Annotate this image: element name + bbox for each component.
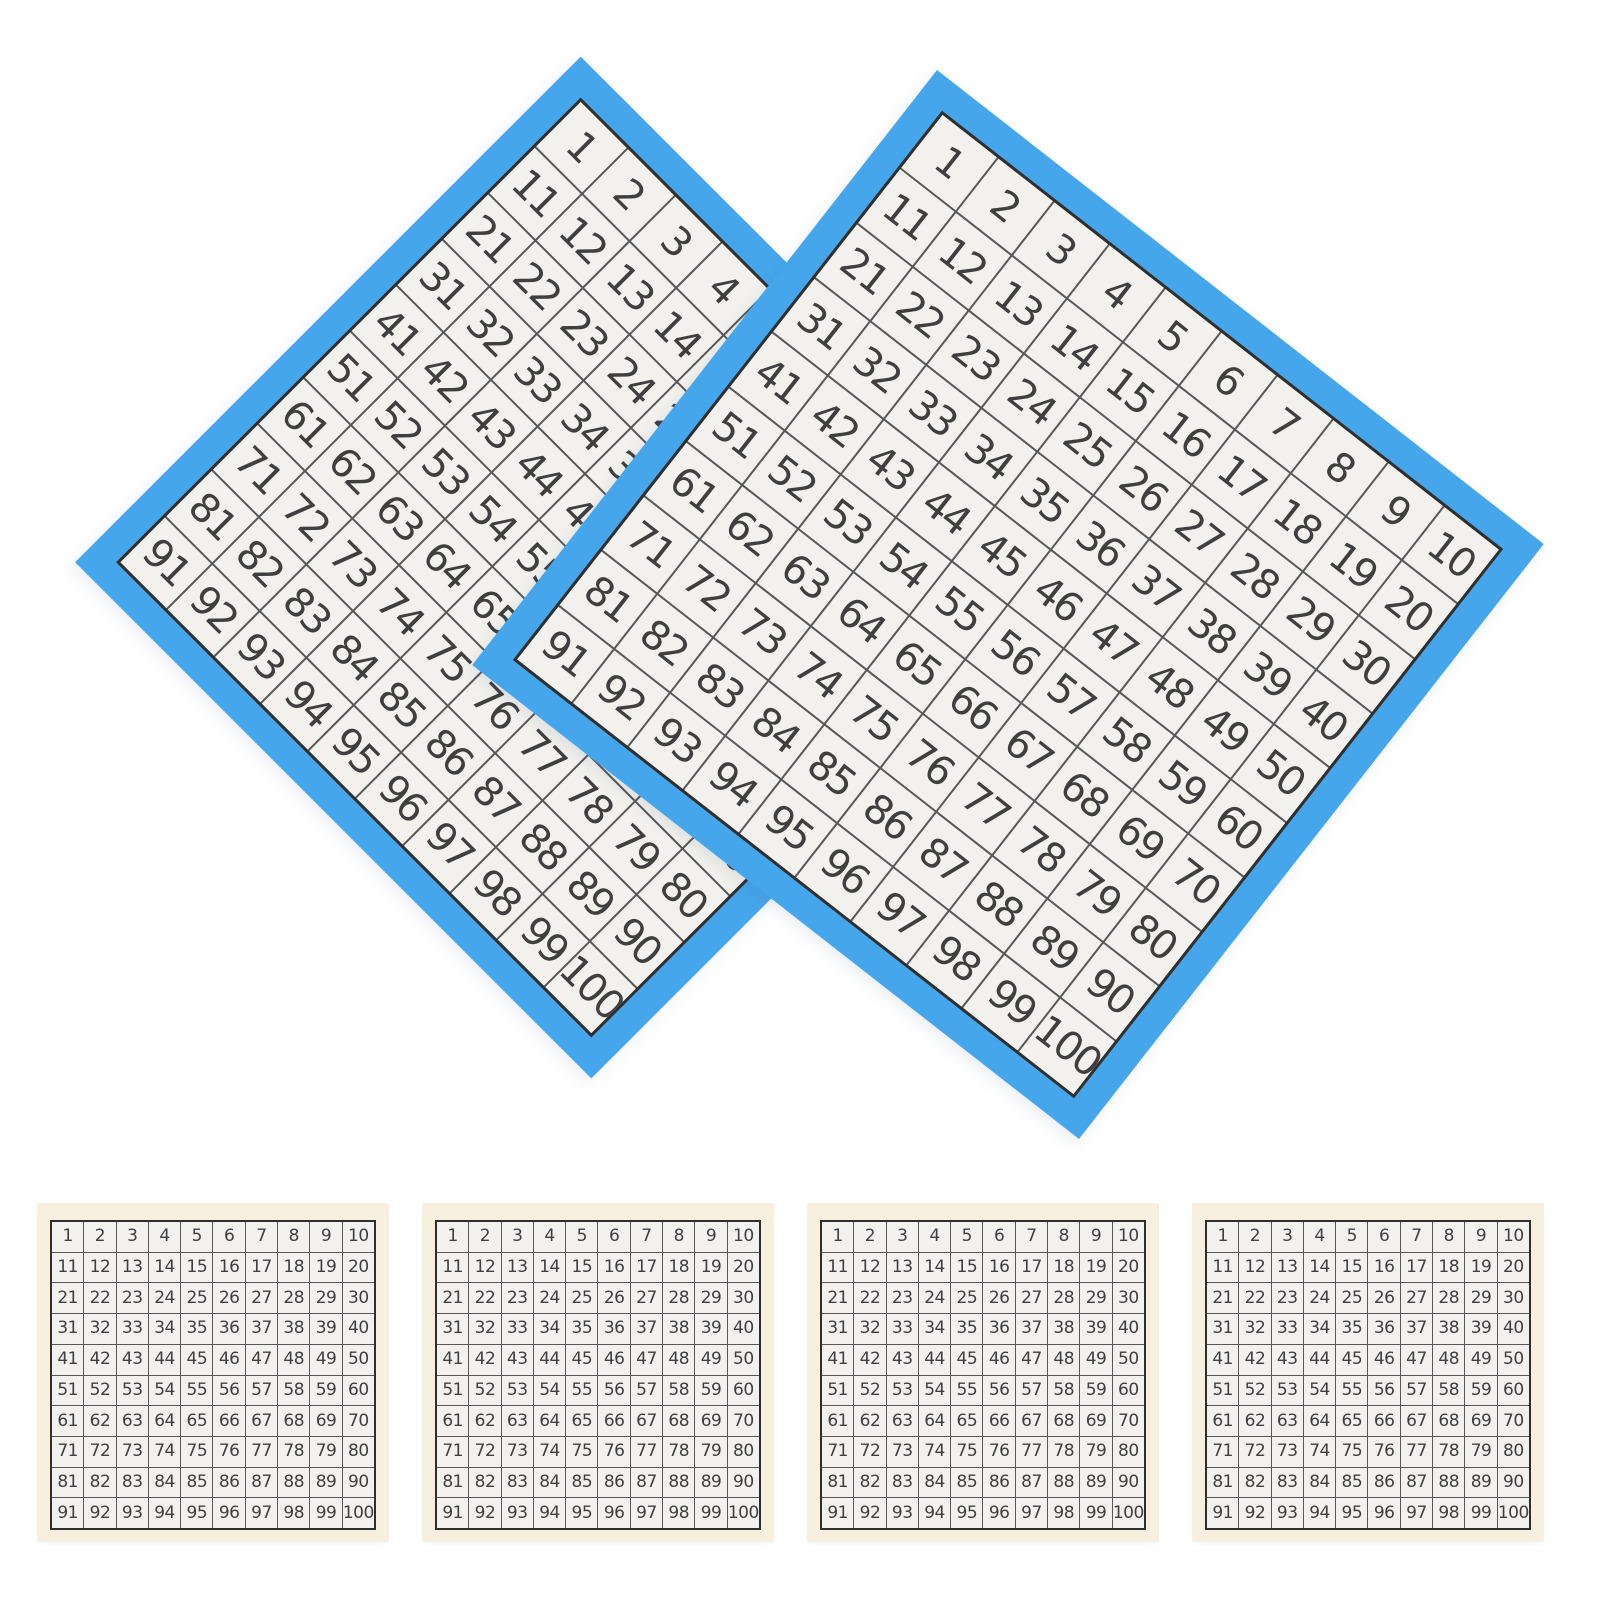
number-cell-69: 69 bbox=[1465, 1406, 1496, 1436]
number-cell-87: 87 bbox=[631, 1468, 662, 1498]
number-cell-70: 70 bbox=[728, 1406, 759, 1436]
number-cell-87: 87 bbox=[1016, 1468, 1047, 1498]
number-cell-4: 4 bbox=[534, 1222, 565, 1252]
number-cell-1: 1 bbox=[437, 1222, 468, 1252]
number-cell-93: 93 bbox=[1272, 1498, 1303, 1528]
number-cell-95: 95 bbox=[566, 1498, 597, 1528]
number-cell-31: 31 bbox=[52, 1314, 83, 1344]
number-cell-15: 15 bbox=[566, 1253, 597, 1283]
number-cell-27: 27 bbox=[631, 1283, 662, 1313]
number-cell-31: 31 bbox=[822, 1314, 853, 1344]
number-cell-65: 65 bbox=[566, 1406, 597, 1436]
number-cell-94: 94 bbox=[1304, 1498, 1335, 1528]
number-cell-41: 41 bbox=[437, 1345, 468, 1375]
number-cell-14: 14 bbox=[919, 1253, 950, 1283]
number-cell-87: 87 bbox=[246, 1468, 277, 1498]
number-cell-33: 33 bbox=[502, 1314, 533, 1344]
number-cell-89: 89 bbox=[1080, 1468, 1111, 1498]
hundred-chart-card-small-2: 1234567891011121314151617181920212223242… bbox=[425, 1210, 771, 1540]
number-cell-18: 18 bbox=[278, 1253, 309, 1283]
number-cell-94: 94 bbox=[149, 1498, 180, 1528]
number-cell-44: 44 bbox=[149, 1345, 180, 1375]
number-cell-33: 33 bbox=[1272, 1314, 1303, 1344]
number-cell-88: 88 bbox=[278, 1468, 309, 1498]
number-cell-91: 91 bbox=[822, 1498, 853, 1528]
number-cell-77: 77 bbox=[246, 1437, 277, 1467]
number-cell-73: 73 bbox=[502, 1437, 533, 1467]
number-cell-35: 35 bbox=[1336, 1314, 1367, 1344]
number-cell-9: 9 bbox=[1465, 1222, 1496, 1252]
number-cell-85: 85 bbox=[1336, 1468, 1367, 1498]
number-cell-38: 38 bbox=[1433, 1314, 1464, 1344]
number-cell-9: 9 bbox=[695, 1222, 726, 1252]
number-cell-93: 93 bbox=[502, 1498, 533, 1528]
number-cell-6: 6 bbox=[598, 1222, 629, 1252]
number-cell-71: 71 bbox=[52, 1437, 83, 1467]
number-cell-25: 25 bbox=[566, 1283, 597, 1313]
number-cell-28: 28 bbox=[1433, 1283, 1464, 1313]
number-cell-66: 66 bbox=[213, 1406, 244, 1436]
number-cell-73: 73 bbox=[117, 1437, 148, 1467]
number-cell-43: 43 bbox=[887, 1345, 918, 1375]
number-cell-56: 56 bbox=[983, 1376, 1014, 1406]
number-cell-13: 13 bbox=[117, 1253, 148, 1283]
number-cell-26: 26 bbox=[983, 1283, 1014, 1313]
number-cell-76: 76 bbox=[598, 1437, 629, 1467]
number-cell-60: 60 bbox=[728, 1376, 759, 1406]
number-cell-84: 84 bbox=[534, 1468, 565, 1498]
number-cell-20: 20 bbox=[728, 1253, 759, 1283]
number-cell-48: 48 bbox=[278, 1345, 309, 1375]
number-cell-75: 75 bbox=[1336, 1437, 1367, 1467]
number-cell-65: 65 bbox=[1336, 1406, 1367, 1436]
number-cell-40: 40 bbox=[343, 1314, 374, 1344]
number-cell-2: 2 bbox=[854, 1222, 885, 1252]
number-cell-6: 6 bbox=[213, 1222, 244, 1252]
number-cell-81: 81 bbox=[822, 1468, 853, 1498]
number-cell-91: 91 bbox=[52, 1498, 83, 1528]
number-cell-13: 13 bbox=[1272, 1253, 1303, 1283]
number-cell-59: 59 bbox=[695, 1376, 726, 1406]
number-cell-68: 68 bbox=[278, 1406, 309, 1436]
number-cell-85: 85 bbox=[951, 1468, 982, 1498]
number-cell-58: 58 bbox=[278, 1376, 309, 1406]
number-cell-3: 3 bbox=[887, 1222, 918, 1252]
number-cell-9: 9 bbox=[310, 1222, 341, 1252]
number-cell-11: 11 bbox=[1207, 1253, 1238, 1283]
number-cell-100: 100 bbox=[1498, 1498, 1529, 1528]
number-cell-91: 91 bbox=[1207, 1498, 1238, 1528]
number-cell-37: 37 bbox=[246, 1314, 277, 1344]
number-cell-90: 90 bbox=[1113, 1468, 1144, 1498]
number-cell-43: 43 bbox=[1272, 1345, 1303, 1375]
number-cell-68: 68 bbox=[1433, 1406, 1464, 1436]
number-cell-79: 79 bbox=[1080, 1437, 1111, 1467]
number-cell-43: 43 bbox=[502, 1345, 533, 1375]
number-cell-53: 53 bbox=[502, 1376, 533, 1406]
number-cell-42: 42 bbox=[854, 1345, 885, 1375]
number-cell-89: 89 bbox=[1465, 1468, 1496, 1498]
number-cell-34: 34 bbox=[1304, 1314, 1335, 1344]
number-cell-7: 7 bbox=[1016, 1222, 1047, 1252]
number-cell-89: 89 bbox=[310, 1468, 341, 1498]
number-cell-66: 66 bbox=[983, 1406, 1014, 1436]
number-cell-11: 11 bbox=[822, 1253, 853, 1283]
number-cell-88: 88 bbox=[1433, 1468, 1464, 1498]
number-cell-98: 98 bbox=[1433, 1498, 1464, 1528]
hundred-chart-card-small-3: 1234567891011121314151617181920212223242… bbox=[810, 1210, 1156, 1540]
number-cell-83: 83 bbox=[1272, 1468, 1303, 1498]
number-cell-95: 95 bbox=[181, 1498, 212, 1528]
number-cell-62: 62 bbox=[84, 1406, 115, 1436]
number-cell-55: 55 bbox=[951, 1376, 982, 1406]
number-cell-40: 40 bbox=[728, 1314, 759, 1344]
number-cell-78: 78 bbox=[663, 1437, 694, 1467]
number-cell-19: 19 bbox=[695, 1253, 726, 1283]
number-cell-27: 27 bbox=[1401, 1283, 1432, 1313]
number-cell-39: 39 bbox=[1080, 1314, 1111, 1344]
number-cell-16: 16 bbox=[983, 1253, 1014, 1283]
number-cell-61: 61 bbox=[437, 1406, 468, 1436]
number-cell-96: 96 bbox=[598, 1498, 629, 1528]
number-cell-46: 46 bbox=[213, 1345, 244, 1375]
number-cell-89: 89 bbox=[695, 1468, 726, 1498]
number-cell-53: 53 bbox=[1272, 1376, 1303, 1406]
number-cell-77: 77 bbox=[1016, 1437, 1047, 1467]
number-cell-24: 24 bbox=[149, 1283, 180, 1313]
number-cell-99: 99 bbox=[695, 1498, 726, 1528]
number-cell-26: 26 bbox=[1368, 1283, 1399, 1313]
number-cell-86: 86 bbox=[1368, 1468, 1399, 1498]
number-cell-29: 29 bbox=[695, 1283, 726, 1313]
number-cell-94: 94 bbox=[534, 1498, 565, 1528]
number-cell-76: 76 bbox=[1368, 1437, 1399, 1467]
number-cell-36: 36 bbox=[598, 1314, 629, 1344]
number-cell-13: 13 bbox=[502, 1253, 533, 1283]
number-cell-55: 55 bbox=[181, 1376, 212, 1406]
number-cell-32: 32 bbox=[854, 1314, 885, 1344]
number-cell-97: 97 bbox=[246, 1498, 277, 1528]
number-cell-56: 56 bbox=[1368, 1376, 1399, 1406]
number-cell-9: 9 bbox=[1080, 1222, 1111, 1252]
number-cell-61: 61 bbox=[52, 1406, 83, 1436]
number-cell-39: 39 bbox=[695, 1314, 726, 1344]
hundred-chart-grid-small-1: 1234567891011121314151617181920212223242… bbox=[50, 1220, 376, 1530]
number-cell-60: 60 bbox=[343, 1376, 374, 1406]
hundred-chart-grid-small-3: 1234567891011121314151617181920212223242… bbox=[820, 1220, 1146, 1530]
number-cell-33: 33 bbox=[117, 1314, 148, 1344]
number-cell-51: 51 bbox=[822, 1376, 853, 1406]
number-cell-35: 35 bbox=[181, 1314, 212, 1344]
number-cell-35: 35 bbox=[951, 1314, 982, 1344]
number-cell-92: 92 bbox=[1239, 1498, 1270, 1528]
number-cell-24: 24 bbox=[1304, 1283, 1335, 1313]
number-cell-57: 57 bbox=[631, 1376, 662, 1406]
number-cell-41: 41 bbox=[822, 1345, 853, 1375]
number-cell-33: 33 bbox=[887, 1314, 918, 1344]
number-cell-40: 40 bbox=[1113, 1314, 1144, 1344]
number-cell-10: 10 bbox=[1113, 1222, 1144, 1252]
number-cell-99: 99 bbox=[310, 1498, 341, 1528]
number-cell-95: 95 bbox=[951, 1498, 982, 1528]
number-cell-34: 34 bbox=[149, 1314, 180, 1344]
number-cell-97: 97 bbox=[1401, 1498, 1432, 1528]
number-cell-64: 64 bbox=[919, 1406, 950, 1436]
number-cell-21: 21 bbox=[52, 1283, 83, 1313]
number-cell-59: 59 bbox=[1080, 1376, 1111, 1406]
number-cell-78: 78 bbox=[1048, 1437, 1079, 1467]
number-cell-25: 25 bbox=[951, 1283, 982, 1313]
number-cell-27: 27 bbox=[1016, 1283, 1047, 1313]
number-cell-24: 24 bbox=[919, 1283, 950, 1313]
number-cell-97: 97 bbox=[631, 1498, 662, 1528]
number-cell-87: 87 bbox=[1401, 1468, 1432, 1498]
number-cell-36: 36 bbox=[1368, 1314, 1399, 1344]
hundred-chart-grid-small-2: 1234567891011121314151617181920212223242… bbox=[435, 1220, 761, 1530]
number-cell-54: 54 bbox=[149, 1376, 180, 1406]
number-cell-60: 60 bbox=[1113, 1376, 1144, 1406]
number-cell-70: 70 bbox=[1498, 1406, 1529, 1436]
number-cell-97: 97 bbox=[1016, 1498, 1047, 1528]
number-cell-53: 53 bbox=[117, 1376, 148, 1406]
number-cell-63: 63 bbox=[887, 1406, 918, 1436]
number-cell-93: 93 bbox=[887, 1498, 918, 1528]
number-cell-14: 14 bbox=[1304, 1253, 1335, 1283]
number-cell-32: 32 bbox=[1239, 1314, 1270, 1344]
number-cell-7: 7 bbox=[1401, 1222, 1432, 1252]
number-cell-69: 69 bbox=[695, 1406, 726, 1436]
number-cell-35: 35 bbox=[566, 1314, 597, 1344]
number-cell-49: 49 bbox=[1465, 1345, 1496, 1375]
number-cell-2: 2 bbox=[84, 1222, 115, 1252]
number-cell-75: 75 bbox=[566, 1437, 597, 1467]
number-cell-37: 37 bbox=[1401, 1314, 1432, 1344]
number-cell-86: 86 bbox=[983, 1468, 1014, 1498]
number-cell-68: 68 bbox=[1048, 1406, 1079, 1436]
number-cell-74: 74 bbox=[1304, 1437, 1335, 1467]
number-cell-56: 56 bbox=[213, 1376, 244, 1406]
number-cell-27: 27 bbox=[246, 1283, 277, 1313]
number-cell-3: 3 bbox=[1272, 1222, 1303, 1252]
number-cell-21: 21 bbox=[437, 1283, 468, 1313]
number-cell-88: 88 bbox=[1048, 1468, 1079, 1498]
number-cell-51: 51 bbox=[1207, 1376, 1238, 1406]
number-cell-73: 73 bbox=[887, 1437, 918, 1467]
number-cell-31: 31 bbox=[437, 1314, 468, 1344]
number-cell-7: 7 bbox=[631, 1222, 662, 1252]
number-cell-65: 65 bbox=[951, 1406, 982, 1436]
number-cell-58: 58 bbox=[663, 1376, 694, 1406]
number-cell-13: 13 bbox=[887, 1253, 918, 1283]
number-cell-77: 77 bbox=[631, 1437, 662, 1467]
number-cell-37: 37 bbox=[1016, 1314, 1047, 1344]
number-cell-51: 51 bbox=[437, 1376, 468, 1406]
number-cell-55: 55 bbox=[566, 1376, 597, 1406]
number-cell-90: 90 bbox=[343, 1468, 374, 1498]
number-cell-30: 30 bbox=[343, 1283, 374, 1313]
number-cell-46: 46 bbox=[983, 1345, 1014, 1375]
number-cell-19: 19 bbox=[1080, 1253, 1111, 1283]
number-cell-45: 45 bbox=[1336, 1345, 1367, 1375]
number-cell-63: 63 bbox=[1272, 1406, 1303, 1436]
number-cell-78: 78 bbox=[278, 1437, 309, 1467]
number-cell-61: 61 bbox=[822, 1406, 853, 1436]
number-cell-30: 30 bbox=[1498, 1283, 1529, 1313]
number-cell-79: 79 bbox=[1465, 1437, 1496, 1467]
number-cell-26: 26 bbox=[598, 1283, 629, 1313]
number-cell-21: 21 bbox=[1207, 1283, 1238, 1313]
number-cell-46: 46 bbox=[598, 1345, 629, 1375]
number-cell-98: 98 bbox=[278, 1498, 309, 1528]
number-cell-84: 84 bbox=[149, 1468, 180, 1498]
number-cell-25: 25 bbox=[181, 1283, 212, 1313]
number-cell-41: 41 bbox=[52, 1345, 83, 1375]
number-cell-83: 83 bbox=[117, 1468, 148, 1498]
number-cell-71: 71 bbox=[437, 1437, 468, 1467]
number-cell-8: 8 bbox=[278, 1222, 309, 1252]
number-cell-91: 91 bbox=[437, 1498, 468, 1528]
number-cell-20: 20 bbox=[343, 1253, 374, 1283]
number-cell-61: 61 bbox=[1207, 1406, 1238, 1436]
number-cell-34: 34 bbox=[534, 1314, 565, 1344]
number-cell-10: 10 bbox=[343, 1222, 374, 1252]
number-cell-99: 99 bbox=[1465, 1498, 1496, 1528]
number-cell-67: 67 bbox=[246, 1406, 277, 1436]
number-cell-45: 45 bbox=[951, 1345, 982, 1375]
number-cell-14: 14 bbox=[149, 1253, 180, 1283]
number-cell-21: 21 bbox=[822, 1283, 853, 1313]
number-cell-59: 59 bbox=[1465, 1376, 1496, 1406]
number-cell-36: 36 bbox=[213, 1314, 244, 1344]
number-cell-82: 82 bbox=[469, 1468, 500, 1498]
number-cell-23: 23 bbox=[1272, 1283, 1303, 1313]
number-cell-84: 84 bbox=[1304, 1468, 1335, 1498]
number-cell-1: 1 bbox=[822, 1222, 853, 1252]
number-cell-28: 28 bbox=[278, 1283, 309, 1313]
number-cell-12: 12 bbox=[1239, 1253, 1270, 1283]
number-cell-11: 11 bbox=[437, 1253, 468, 1283]
number-cell-32: 32 bbox=[469, 1314, 500, 1344]
number-cell-85: 85 bbox=[566, 1468, 597, 1498]
number-cell-18: 18 bbox=[663, 1253, 694, 1283]
number-cell-4: 4 bbox=[1304, 1222, 1335, 1252]
number-cell-50: 50 bbox=[728, 1345, 759, 1375]
number-cell-16: 16 bbox=[213, 1253, 244, 1283]
number-cell-8: 8 bbox=[1433, 1222, 1464, 1252]
number-cell-67: 67 bbox=[631, 1406, 662, 1436]
number-cell-72: 72 bbox=[469, 1437, 500, 1467]
number-cell-18: 18 bbox=[1048, 1253, 1079, 1283]
number-cell-49: 49 bbox=[1080, 1345, 1111, 1375]
number-cell-59: 59 bbox=[310, 1376, 341, 1406]
number-cell-37: 37 bbox=[631, 1314, 662, 1344]
number-cell-72: 72 bbox=[84, 1437, 115, 1467]
number-cell-72: 72 bbox=[854, 1437, 885, 1467]
number-cell-85: 85 bbox=[181, 1468, 212, 1498]
number-cell-95: 95 bbox=[1336, 1498, 1367, 1528]
number-cell-100: 100 bbox=[1113, 1498, 1144, 1528]
number-cell-98: 98 bbox=[663, 1498, 694, 1528]
hundred-chart-card-small-4: 1234567891011121314151617181920212223242… bbox=[1195, 1210, 1541, 1540]
number-cell-15: 15 bbox=[1336, 1253, 1367, 1283]
number-cell-6: 6 bbox=[983, 1222, 1014, 1252]
number-cell-43: 43 bbox=[117, 1345, 148, 1375]
number-cell-28: 28 bbox=[1048, 1283, 1079, 1313]
number-cell-64: 64 bbox=[149, 1406, 180, 1436]
number-cell-18: 18 bbox=[1433, 1253, 1464, 1283]
number-cell-79: 79 bbox=[695, 1437, 726, 1467]
number-cell-12: 12 bbox=[469, 1253, 500, 1283]
number-cell-30: 30 bbox=[1113, 1283, 1144, 1313]
number-cell-64: 64 bbox=[1304, 1406, 1335, 1436]
number-cell-58: 58 bbox=[1433, 1376, 1464, 1406]
number-cell-50: 50 bbox=[343, 1345, 374, 1375]
number-cell-29: 29 bbox=[310, 1283, 341, 1313]
number-cell-70: 70 bbox=[1113, 1406, 1144, 1436]
number-cell-69: 69 bbox=[1080, 1406, 1111, 1436]
number-cell-38: 38 bbox=[663, 1314, 694, 1344]
number-cell-62: 62 bbox=[1239, 1406, 1270, 1436]
number-cell-17: 17 bbox=[631, 1253, 662, 1283]
number-cell-67: 67 bbox=[1401, 1406, 1432, 1436]
number-cell-80: 80 bbox=[1498, 1437, 1529, 1467]
number-cell-63: 63 bbox=[117, 1406, 148, 1436]
hundred-chart-card-small-1: 1234567891011121314151617181920212223242… bbox=[40, 1210, 386, 1540]
number-cell-52: 52 bbox=[84, 1376, 115, 1406]
number-cell-5: 5 bbox=[951, 1222, 982, 1252]
number-cell-3: 3 bbox=[502, 1222, 533, 1252]
number-cell-51: 51 bbox=[52, 1376, 83, 1406]
number-cell-52: 52 bbox=[854, 1376, 885, 1406]
number-cell-39: 39 bbox=[310, 1314, 341, 1344]
product-photo-canvas: 1234567891011121314151617181920212223242… bbox=[0, 0, 1600, 1600]
number-cell-54: 54 bbox=[919, 1376, 950, 1406]
number-cell-82: 82 bbox=[1239, 1468, 1270, 1498]
number-cell-65: 65 bbox=[181, 1406, 212, 1436]
number-cell-4: 4 bbox=[919, 1222, 950, 1252]
number-cell-68: 68 bbox=[663, 1406, 694, 1436]
number-cell-75: 75 bbox=[951, 1437, 982, 1467]
number-cell-57: 57 bbox=[1401, 1376, 1432, 1406]
number-cell-48: 48 bbox=[1048, 1345, 1079, 1375]
number-cell-47: 47 bbox=[1401, 1345, 1432, 1375]
number-cell-54: 54 bbox=[1304, 1376, 1335, 1406]
number-cell-90: 90 bbox=[1498, 1468, 1529, 1498]
number-cell-28: 28 bbox=[663, 1283, 694, 1313]
number-cell-93: 93 bbox=[117, 1498, 148, 1528]
number-cell-5: 5 bbox=[181, 1222, 212, 1252]
number-cell-45: 45 bbox=[181, 1345, 212, 1375]
number-cell-82: 82 bbox=[854, 1468, 885, 1498]
number-cell-4: 4 bbox=[149, 1222, 180, 1252]
number-cell-5: 5 bbox=[566, 1222, 597, 1252]
number-cell-100: 100 bbox=[343, 1498, 374, 1528]
number-cell-74: 74 bbox=[149, 1437, 180, 1467]
number-cell-29: 29 bbox=[1080, 1283, 1111, 1313]
number-cell-54: 54 bbox=[534, 1376, 565, 1406]
number-cell-49: 49 bbox=[695, 1345, 726, 1375]
number-cell-92: 92 bbox=[854, 1498, 885, 1528]
number-cell-19: 19 bbox=[1465, 1253, 1496, 1283]
number-cell-30: 30 bbox=[728, 1283, 759, 1313]
number-cell-53: 53 bbox=[887, 1376, 918, 1406]
number-cell-1: 1 bbox=[1207, 1222, 1238, 1252]
number-cell-96: 96 bbox=[983, 1498, 1014, 1528]
number-cell-72: 72 bbox=[1239, 1437, 1270, 1467]
number-cell-5: 5 bbox=[1336, 1222, 1367, 1252]
number-cell-2: 2 bbox=[469, 1222, 500, 1252]
number-cell-66: 66 bbox=[1368, 1406, 1399, 1436]
